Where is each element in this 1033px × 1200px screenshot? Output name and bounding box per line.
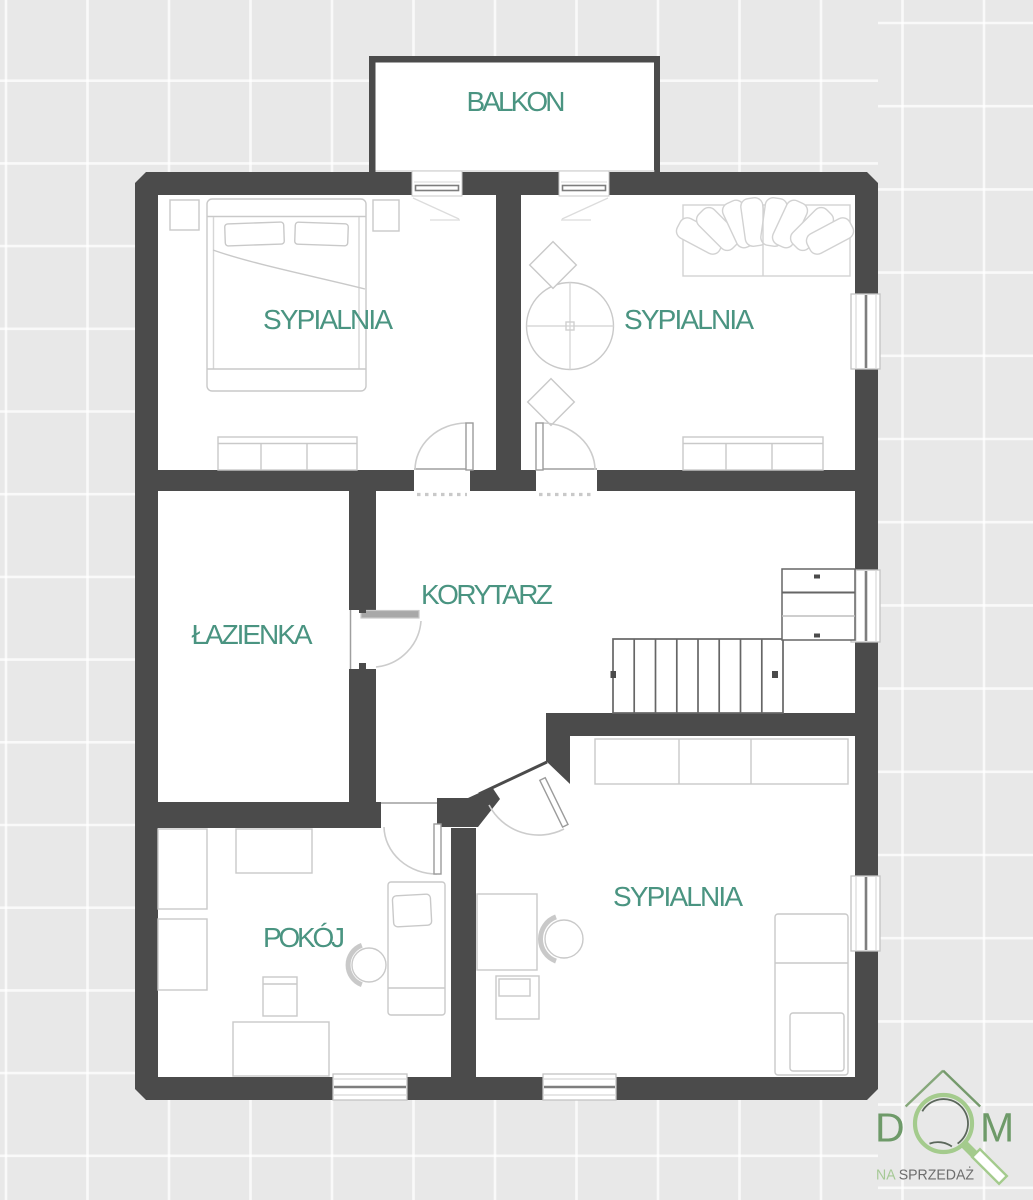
svg-text:POKÓJ: POKÓJ xyxy=(263,922,345,953)
svg-text:D: D xyxy=(875,1105,905,1151)
svg-text:SYPIALNIA: SYPIALNIA xyxy=(263,304,393,335)
svg-text:SYPIALNIA: SYPIALNIA xyxy=(624,304,754,335)
svg-text:SYPIALNIA: SYPIALNIA xyxy=(613,881,743,912)
svg-text:KORYTARZ: KORYTARZ xyxy=(421,579,553,610)
svg-text:ŁAZIENKA: ŁAZIENKA xyxy=(192,619,313,650)
svg-text:NA SPRZEDAŻ: NA SPRZEDAŻ xyxy=(876,1166,974,1184)
svg-text:BALKON: BALKON xyxy=(467,86,566,117)
svg-text:M: M xyxy=(980,1105,1014,1151)
